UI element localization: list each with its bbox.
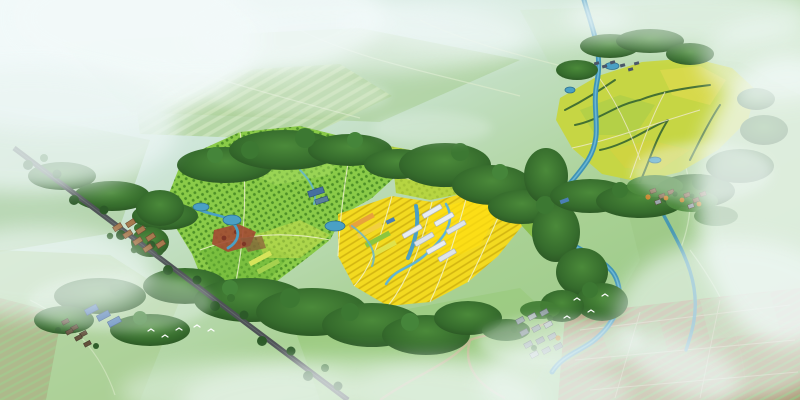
aerial-rendering <box>0 0 800 400</box>
